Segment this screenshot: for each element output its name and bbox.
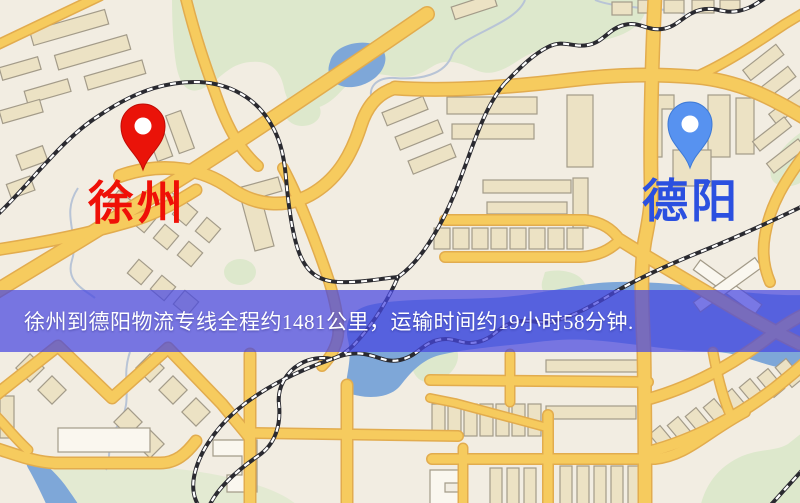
map-canvas[interactable]: 徐州 德阳 <box>0 0 800 503</box>
origin-pin-hole <box>135 118 152 135</box>
origin-city-label: 徐州 <box>87 178 186 229</box>
destination-city-label: 德阳 <box>642 176 740 227</box>
destination-pin-hole <box>682 116 699 133</box>
map-screenshot: 徐州 德阳 徐州到德阳物流专线全程约1481公里，运输时间约19小时58分钟. <box>0 0 800 503</box>
route-info-banner: 徐州到德阳物流专线全程约1481公里，运输时间约19小时58分钟. <box>0 290 800 352</box>
route-info-text: 徐州到德阳物流专线全程约1481公里，运输时间约19小时58分钟. <box>0 306 634 336</box>
